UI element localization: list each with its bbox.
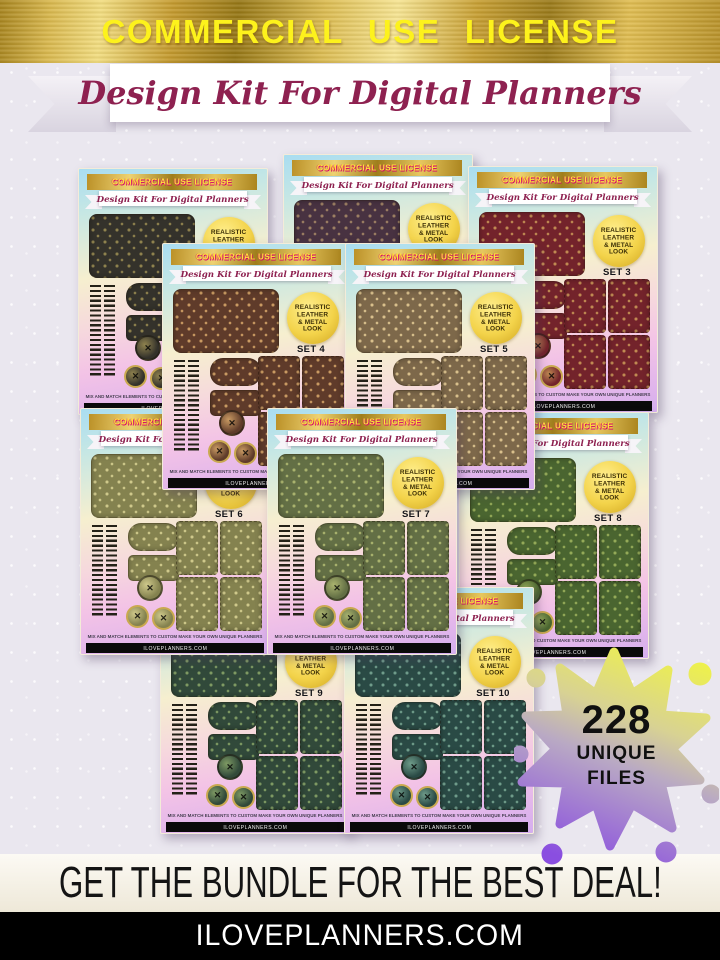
card-site-url: ILOVEPLANNERS.COM <box>407 824 471 829</box>
site-url: ILOVEPLANNERS.COM <box>196 921 524 951</box>
badge-text: REALISTIC LEATHER & METAL LOOK <box>478 303 513 332</box>
site-bar: ILOVEPLANNERS.COM <box>0 912 720 960</box>
badge-text: REALISTIC LEATHER & METAL LOOK <box>416 214 451 243</box>
swatch-grid-cell <box>564 279 606 333</box>
realistic-leather-badge: REALISTIC LEATHER & METAL LOOK <box>593 215 645 267</box>
files-count-line2: FILES <box>514 768 719 790</box>
set-label: SET 5 <box>458 345 530 355</box>
card-license-banner: COMMERCIAL USE LICENSE <box>292 160 462 176</box>
swatch-grid-cell <box>407 577 449 631</box>
swatch-grid-cell <box>256 700 298 754</box>
swatch-grid-cell <box>608 335 650 389</box>
leather-swatch-large <box>356 289 462 353</box>
leather-button <box>540 365 563 388</box>
spiral-binding-strip <box>174 360 185 452</box>
pill-swatch <box>128 523 179 551</box>
leather-button <box>126 605 149 628</box>
swatch-grid-cell <box>300 756 342 810</box>
spiral-binding-strip <box>106 525 117 617</box>
card-title-script: Design Kit For Digital Planners <box>302 180 454 189</box>
spiral-binding-strip <box>92 525 103 617</box>
set-label: SET 8 <box>572 514 644 524</box>
pill-swatch <box>393 358 444 386</box>
badge-text: REALISTIC LEATHER & METAL LOOK <box>295 303 330 332</box>
card-title-script: Design Kit For Digital Planners <box>97 194 249 203</box>
leather-button <box>152 607 175 630</box>
card-site-url: ILOVEPLANNERS.COM <box>330 645 394 650</box>
swatch-grid-cell <box>564 335 606 389</box>
card-license-banner: COMMERCIAL USE LICENSE <box>171 249 341 265</box>
card-title-ribbon: Design Kit For Digital Planners <box>183 266 331 281</box>
swatch-grid-cell <box>555 581 597 635</box>
leather-button <box>324 575 350 601</box>
card-license-text: COMMERCIAL USE LICENSE <box>502 176 622 184</box>
card-license-text: COMMERCIAL USE LICENSE <box>379 253 499 261</box>
card-title-script: Design Kit For Digital Planners <box>487 192 639 201</box>
badge-text: REALISTIC LEATHER & METAL LOOK <box>477 647 512 676</box>
swatch-grid-cell <box>555 525 597 579</box>
badge-text: REALISTIC LEATHER & METAL LOOK <box>592 472 627 501</box>
realistic-leather-badge: REALISTIC LEATHER & METAL LOOK <box>287 292 339 344</box>
set-label: SET 7 <box>380 510 452 520</box>
spiral-binding-strip <box>356 704 367 796</box>
card-license-banner: COMMERCIAL USE LICENSE <box>87 174 257 190</box>
card-license-banner: COMMERCIAL USE LICENSE <box>477 172 647 188</box>
leather-button <box>219 410 245 436</box>
leather-button <box>217 754 243 780</box>
leather-button <box>390 784 413 807</box>
card-site-bar: ILOVEPLANNERS.COM <box>350 822 528 832</box>
leather-button <box>416 786 439 809</box>
card-site-url: ILOVEPLANNERS.COM <box>223 824 287 829</box>
swatch-grid-cell <box>176 521 218 575</box>
card-fine-print: MIX AND MATCH ELEMENTS TO CUSTOM MAKE YO… <box>275 635 450 639</box>
swatch-grid-cell <box>363 577 405 631</box>
realistic-leather-badge: REALISTIC LEATHER & METAL LOOK <box>470 292 522 344</box>
main-title-script: Design Kit For Digital Planners <box>78 74 641 112</box>
swatch-grid-cell <box>256 756 298 810</box>
leather-button <box>531 611 554 634</box>
swatch-grid-cell <box>363 521 405 575</box>
swatch-grid-cell <box>407 521 449 575</box>
card-license-text: COMMERCIAL USE LICENSE <box>317 164 437 172</box>
set-label: SET 9 <box>273 689 345 699</box>
swatch-grid-cell <box>485 356 527 410</box>
spiral-binding-strip <box>370 704 381 796</box>
leather-button <box>313 605 336 628</box>
leather-button <box>234 442 257 465</box>
card-site-url: ILOVEPLANNERS.COM <box>143 645 207 650</box>
swatch-grid-cell <box>599 581 641 635</box>
card-site-bar: ILOVEPLANNERS.COM <box>86 643 264 653</box>
card-site-bar: ILOVEPLANNERS.COM <box>166 822 344 832</box>
card-license-text: COMMERCIAL USE LICENSE <box>112 178 232 186</box>
card-title-script: Design Kit For Digital Planners <box>286 434 438 443</box>
swatch-grid-cell <box>599 525 641 579</box>
set-label: SET 6 <box>193 510 265 520</box>
pill-swatch <box>392 702 443 730</box>
leather-button <box>339 607 362 630</box>
pill-swatch <box>315 523 366 551</box>
pill-swatch <box>208 702 259 730</box>
leather-button <box>135 335 161 361</box>
realistic-leather-badge: REALISTIC LEATHER & METAL LOOK <box>392 457 444 509</box>
swatch-grid-cell <box>440 756 482 810</box>
main-title-ribbon: Design Kit For Digital Planners <box>110 64 610 122</box>
swatch-grid-cell <box>220 577 262 631</box>
spiral-binding-strip <box>279 525 290 617</box>
card-fine-print: MIX AND MATCH ELEMENTS TO CUSTOM MAKE YO… <box>352 814 527 818</box>
card-title-ribbon: Design Kit For Digital Planners <box>489 189 637 204</box>
files-count-number: 228 <box>514 700 719 740</box>
leather-button <box>137 575 163 601</box>
card-license-banner: COMMERCIAL USE LICENSE <box>354 249 524 265</box>
spiral-binding-strip <box>104 285 115 377</box>
pill-swatch <box>507 527 558 555</box>
swatch-grid-cell <box>302 356 344 410</box>
spiral-binding-strip <box>188 360 199 452</box>
card-title-ribbon: Design Kit For Digital Planners <box>288 431 436 446</box>
card-site-url: ILOVEPLANNERS.COM <box>531 403 595 408</box>
badge-text: REALISTIC LEATHER & METAL LOOK <box>601 226 636 255</box>
spiral-binding-strip <box>186 704 197 796</box>
realistic-leather-badge: REALISTIC LEATHER & METAL LOOK <box>584 461 636 513</box>
swatch-grid-cell <box>220 521 262 575</box>
promo-image: COMMERCIAL USE LICENSE Design Kit For Di… <box>0 0 720 960</box>
product-card-7: COMMERCIAL USE LICENSE Design Kit For Di… <box>267 408 457 655</box>
files-count-splat: 228 UNIQUE FILES <box>514 634 719 869</box>
pill-swatch <box>210 358 261 386</box>
spiral-binding-strip <box>293 525 304 617</box>
card-title-ribbon: Design Kit For Digital Planners <box>99 191 247 206</box>
set-label: SET 3 <box>581 268 653 278</box>
spiral-binding-strip <box>172 704 183 796</box>
badge-text: REALISTIC LEATHER & METAL LOOK <box>400 468 435 497</box>
card-title-ribbon: Design Kit For Digital Planners <box>304 177 452 192</box>
card-fine-print: MIX AND MATCH ELEMENTS TO CUSTOM MAKE YO… <box>168 814 343 818</box>
swatch-grid-cell <box>300 700 342 754</box>
leather-button <box>124 365 147 388</box>
swatch-grid-cell <box>176 577 218 631</box>
swatch-grid-cell <box>258 356 300 410</box>
leather-button <box>401 754 427 780</box>
leather-swatch-large <box>173 289 279 353</box>
swatch-grid-cell <box>440 700 482 754</box>
spiral-binding-strip <box>90 285 101 377</box>
card-license-text: COMMERCIAL USE LICENSE <box>301 418 421 426</box>
card-site-bar: ILOVEPLANNERS.COM <box>273 643 451 653</box>
leather-button <box>232 786 255 809</box>
set-label: SET 4 <box>275 345 347 355</box>
leather-button <box>208 440 231 463</box>
swatch-grid-cell <box>608 279 650 333</box>
leather-button <box>206 784 229 807</box>
swatch-grid-cell <box>441 356 483 410</box>
card-title-script: Design Kit For Digital Planners <box>181 269 333 278</box>
card-title-ribbon: Design Kit For Digital Planners <box>366 266 514 281</box>
card-fine-print: MIX AND MATCH ELEMENTS TO CUSTOM MAKE YO… <box>88 635 263 639</box>
files-count-line1: UNIQUE <box>514 743 719 765</box>
swatch-grid-cell <box>485 412 527 466</box>
files-count: 228 UNIQUE FILES <box>514 700 719 790</box>
card-license-text: COMMERCIAL USE LICENSE <box>196 253 316 261</box>
card-license-banner: COMMERCIAL USE LICENSE <box>276 414 446 430</box>
leather-swatch-large <box>278 454 384 518</box>
card-title-script: Design Kit For Digital Planners <box>364 269 516 278</box>
